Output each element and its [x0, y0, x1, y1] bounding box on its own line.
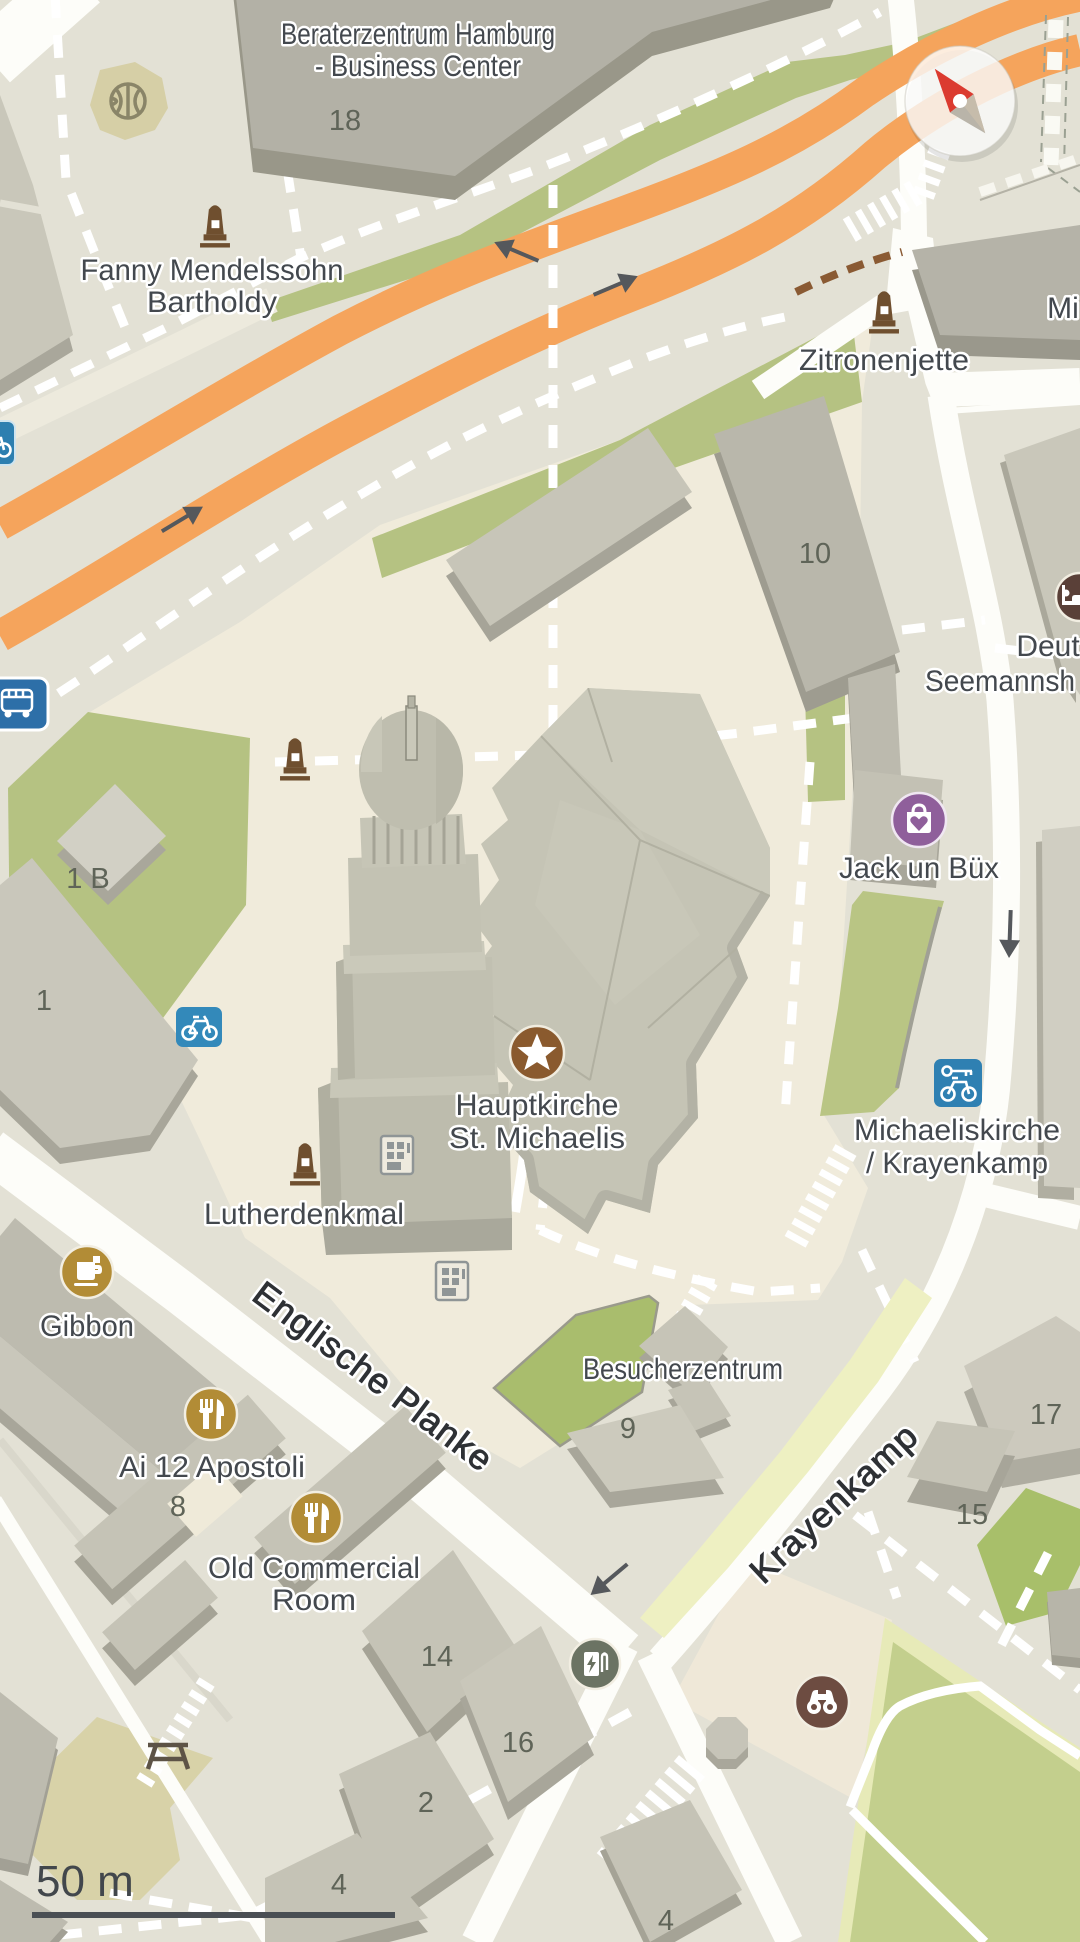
- svg-text:Bartholdy: Bartholdy: [147, 286, 277, 319]
- svg-text:2: 2: [418, 1787, 434, 1819]
- svg-text:Mi: Mi: [1047, 292, 1079, 325]
- svg-text:14: 14: [421, 1641, 453, 1673]
- svg-text:Lutherdenkmal: Lutherdenkmal: [204, 1198, 404, 1231]
- svg-text:4: 4: [658, 1905, 674, 1937]
- svg-text:Fanny Mendelssohn: Fanny Mendelssohn: [81, 254, 344, 287]
- svg-text:Hauptkirche: Hauptkirche: [456, 1089, 619, 1122]
- svg-text:4: 4: [331, 1869, 347, 1901]
- svg-text:50 m: 50 m: [36, 1857, 134, 1906]
- svg-text:- Business Center: - Business Center: [315, 50, 521, 83]
- svg-text:8: 8: [170, 1491, 186, 1523]
- svg-text:Deut: Deut: [1016, 630, 1080, 663]
- svg-text:Beraterzentrum Hamburg: Beraterzentrum Hamburg: [281, 18, 555, 51]
- svg-text:Besucherzentrum: Besucherzentrum: [583, 1353, 783, 1386]
- svg-text:16: 16: [502, 1727, 534, 1759]
- svg-text:9: 9: [620, 1413, 636, 1445]
- svg-text:15: 15: [956, 1499, 988, 1531]
- svg-text:Ai 12 Apostoli: Ai 12 Apostoli: [119, 1451, 305, 1484]
- svg-text:Room: Room: [272, 1584, 356, 1617]
- svg-text:St. Michaelis: St. Michaelis: [449, 1122, 625, 1155]
- svg-text:Old Commercial: Old Commercial: [208, 1552, 420, 1585]
- svg-text:Seemannsh: Seemannsh: [925, 665, 1075, 698]
- svg-text:Jack un Büx: Jack un Büx: [839, 852, 999, 885]
- svg-text:18: 18: [329, 105, 361, 137]
- svg-text:Michaeliskirche: Michaeliskirche: [854, 1114, 1060, 1147]
- svg-text:17: 17: [1030, 1399, 1062, 1431]
- svg-text:/ Krayenkamp: / Krayenkamp: [866, 1147, 1048, 1180]
- svg-text:Zitronenjette: Zitronenjette: [799, 344, 969, 377]
- svg-text:10: 10: [799, 538, 831, 570]
- svg-text:Gibbon: Gibbon: [40, 1310, 134, 1343]
- svg-text:1 B: 1 B: [66, 863, 110, 895]
- svg-text:1: 1: [36, 985, 52, 1017]
